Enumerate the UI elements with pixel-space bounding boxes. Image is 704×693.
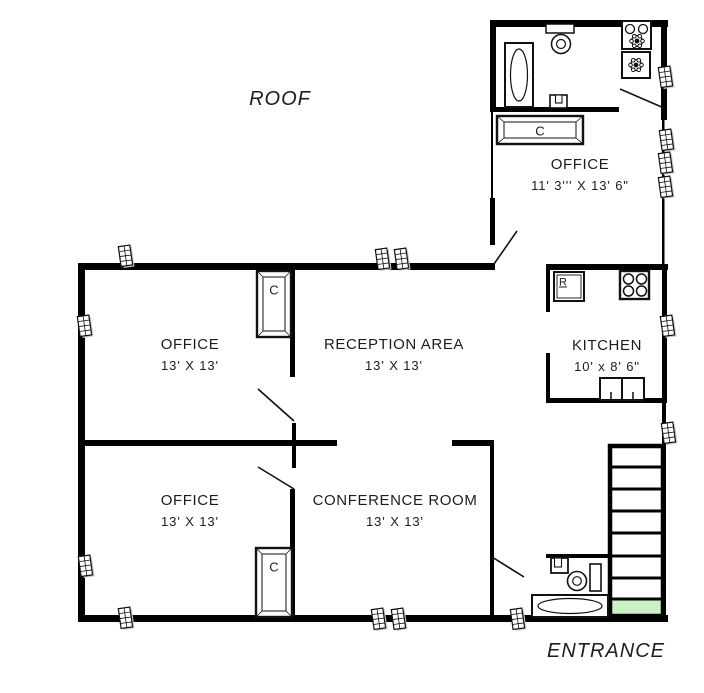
door-swing: [258, 389, 294, 421]
wall-segment: [546, 264, 668, 270]
window-icon: [658, 66, 674, 89]
window-icon: [78, 555, 94, 578]
lower-bathroom-fixtures: [532, 558, 608, 617]
bathtub-icon: [505, 43, 533, 107]
door-swing: [258, 467, 294, 489]
upper-bathroom-fixtures: [505, 21, 651, 108]
room-label-kitchen: KITCHEN 10' x 8' 6": [572, 337, 642, 374]
window-icon: [658, 176, 674, 199]
window-icon: [658, 152, 674, 175]
room-dims: 13' X 13': [161, 514, 220, 529]
room-name: RECEPTION AREA: [324, 336, 464, 353]
refrigerator-letter: R: [559, 277, 567, 290]
door-swing: [494, 231, 517, 264]
window-icon: [391, 608, 407, 631]
bathtub-icon: [532, 595, 608, 617]
window-icon: [77, 315, 93, 338]
room-name: KITCHEN: [572, 337, 642, 354]
window-icon: [371, 608, 387, 631]
closet-letter: C: [269, 284, 278, 297]
wall-segment: [490, 20, 496, 112]
entrance-label: ENTRANCE: [547, 640, 665, 663]
wall-segment: [452, 440, 494, 446]
window-icon: [510, 608, 526, 631]
room-dims: 13' X 13': [324, 358, 464, 373]
wall-segment: [78, 263, 495, 270]
room-label-office-lower-left: OFFICE 13' X 13': [161, 492, 220, 529]
toilet-icon: [552, 35, 571, 54]
door-swing: [620, 89, 664, 108]
room-name: CONFERENCE ROOM: [313, 492, 478, 509]
shelf-icon: [546, 24, 574, 33]
room-name: OFFICE: [531, 156, 629, 173]
window-icon: [394, 248, 410, 271]
room-name: OFFICE: [161, 492, 220, 509]
room-label-office-upper-right: OFFICE 11' 3''' X 13' 6": [531, 156, 629, 193]
double-sink-icon: [600, 378, 644, 400]
door-swing: [492, 557, 524, 577]
kitchen-fixtures: [554, 271, 649, 400]
room-dims: 13' X 13': [161, 358, 220, 373]
room-name: OFFICE: [161, 336, 220, 353]
roof-label: ROOF: [249, 88, 311, 111]
cabinet-icon: [590, 564, 601, 591]
walls: [78, 20, 668, 622]
closet-icon: [256, 548, 292, 617]
window-icon: [375, 248, 391, 271]
window-icon: [118, 607, 134, 630]
stove-icon: [622, 21, 651, 49]
room-label-conference: CONFERENCE ROOM 13' X 13': [313, 492, 478, 529]
room-label-reception: RECEPTION AREA 13' X 13': [324, 336, 464, 373]
floor-plan: ROOF OFFICE 11' 3''' X 13' 6" OFFICE 13'…: [0, 0, 704, 693]
window-icon: [660, 315, 676, 338]
wall-segment: [546, 353, 550, 403]
wall-segment: [546, 270, 550, 312]
room-dims: 11' 3''' X 13' 6": [531, 178, 629, 193]
toilet-icon: [568, 572, 587, 591]
wall-segment: [490, 446, 494, 617]
closet-letter: C: [535, 125, 544, 138]
closet-icon: [257, 271, 291, 337]
staircase: [610, 446, 663, 616]
entrance-mat: [611, 600, 662, 615]
window-icon: [659, 129, 675, 152]
wall-segment: [490, 198, 495, 245]
stove-icon: [620, 271, 649, 299]
room-dims: 10' x 8' 6": [572, 359, 642, 374]
appliance-icon: [622, 52, 650, 78]
sink-icon: [551, 558, 568, 573]
room-dims: 13' X 13': [313, 514, 478, 529]
window-icon: [118, 245, 134, 268]
closet-letter: C: [269, 561, 278, 574]
room-label-office-upper-left: OFFICE 13' X 13': [161, 336, 220, 373]
window-icon: [661, 422, 677, 445]
sink-icon: [550, 95, 567, 108]
wall-segment: [491, 112, 493, 198]
wall-segment: [85, 440, 337, 446]
